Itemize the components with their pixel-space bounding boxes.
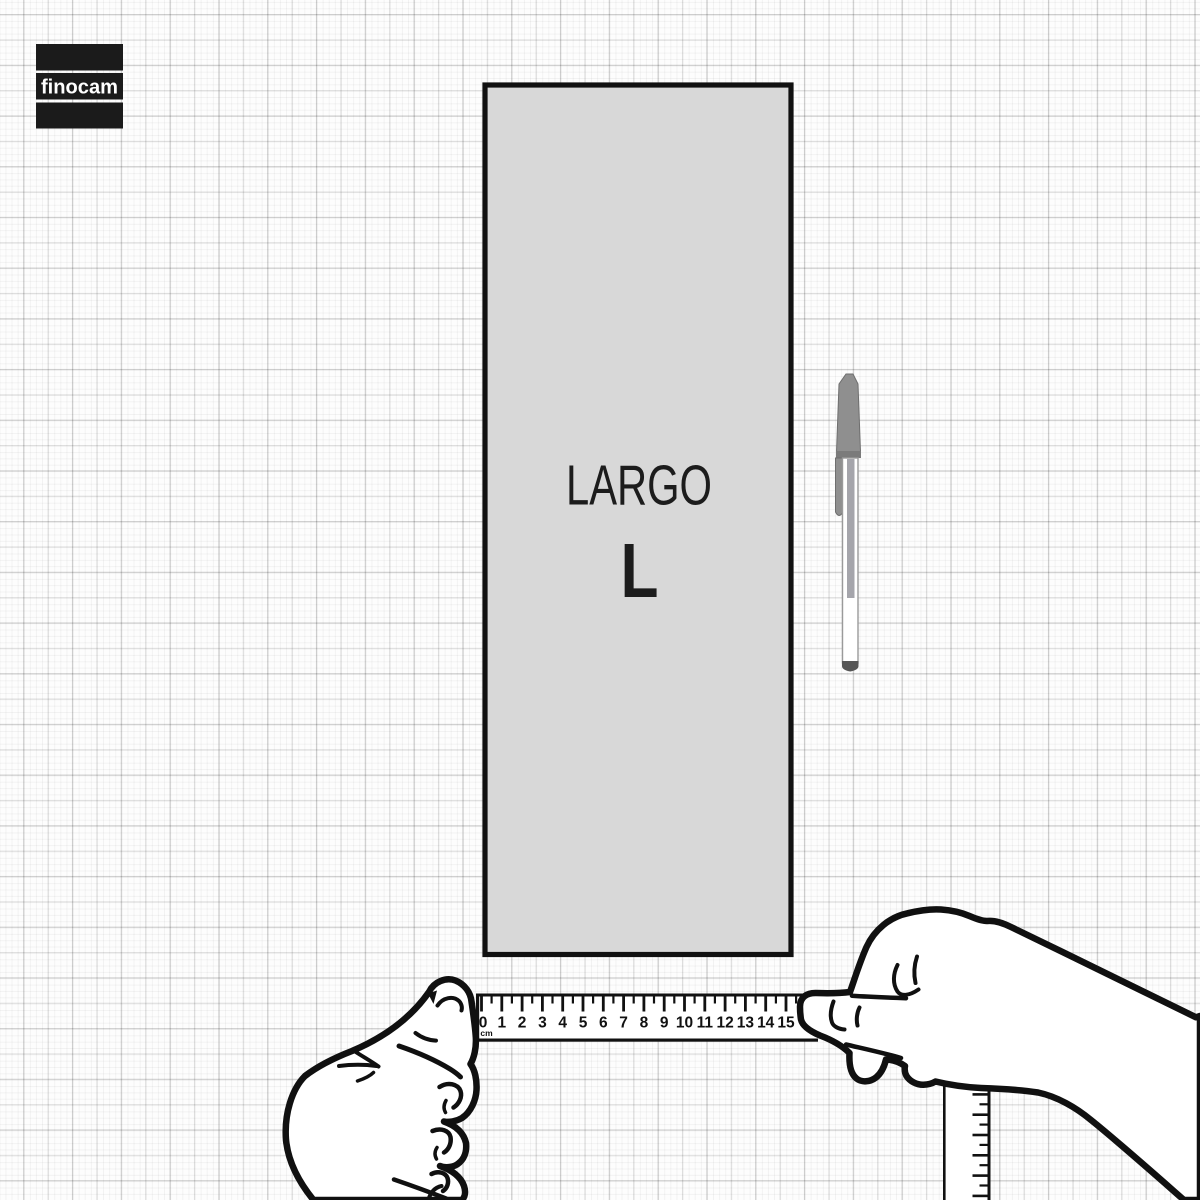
svg-text:L: L <box>621 528 659 614</box>
svg-text:5: 5 <box>579 1015 588 1032</box>
svg-text:10: 10 <box>676 1015 693 1032</box>
svg-text:12: 12 <box>716 1015 733 1032</box>
svg-text:2: 2 <box>518 1015 527 1032</box>
svg-text:14: 14 <box>757 1015 775 1032</box>
svg-text:3: 3 <box>538 1015 547 1032</box>
svg-text:15: 15 <box>777 1015 795 1032</box>
svg-text:LARGO: LARGO <box>566 454 712 517</box>
svg-text:6: 6 <box>599 1015 608 1032</box>
svg-text:9: 9 <box>660 1015 669 1032</box>
svg-text:13: 13 <box>737 1015 755 1032</box>
svg-text:cm: cm <box>480 1028 493 1038</box>
svg-text:finocam: finocam <box>41 77 118 99</box>
svg-text:4: 4 <box>558 1015 567 1032</box>
svg-text:11: 11 <box>697 1015 714 1032</box>
svg-text:1: 1 <box>497 1015 506 1032</box>
svg-text:8: 8 <box>640 1015 649 1032</box>
svg-text:7: 7 <box>619 1015 628 1032</box>
